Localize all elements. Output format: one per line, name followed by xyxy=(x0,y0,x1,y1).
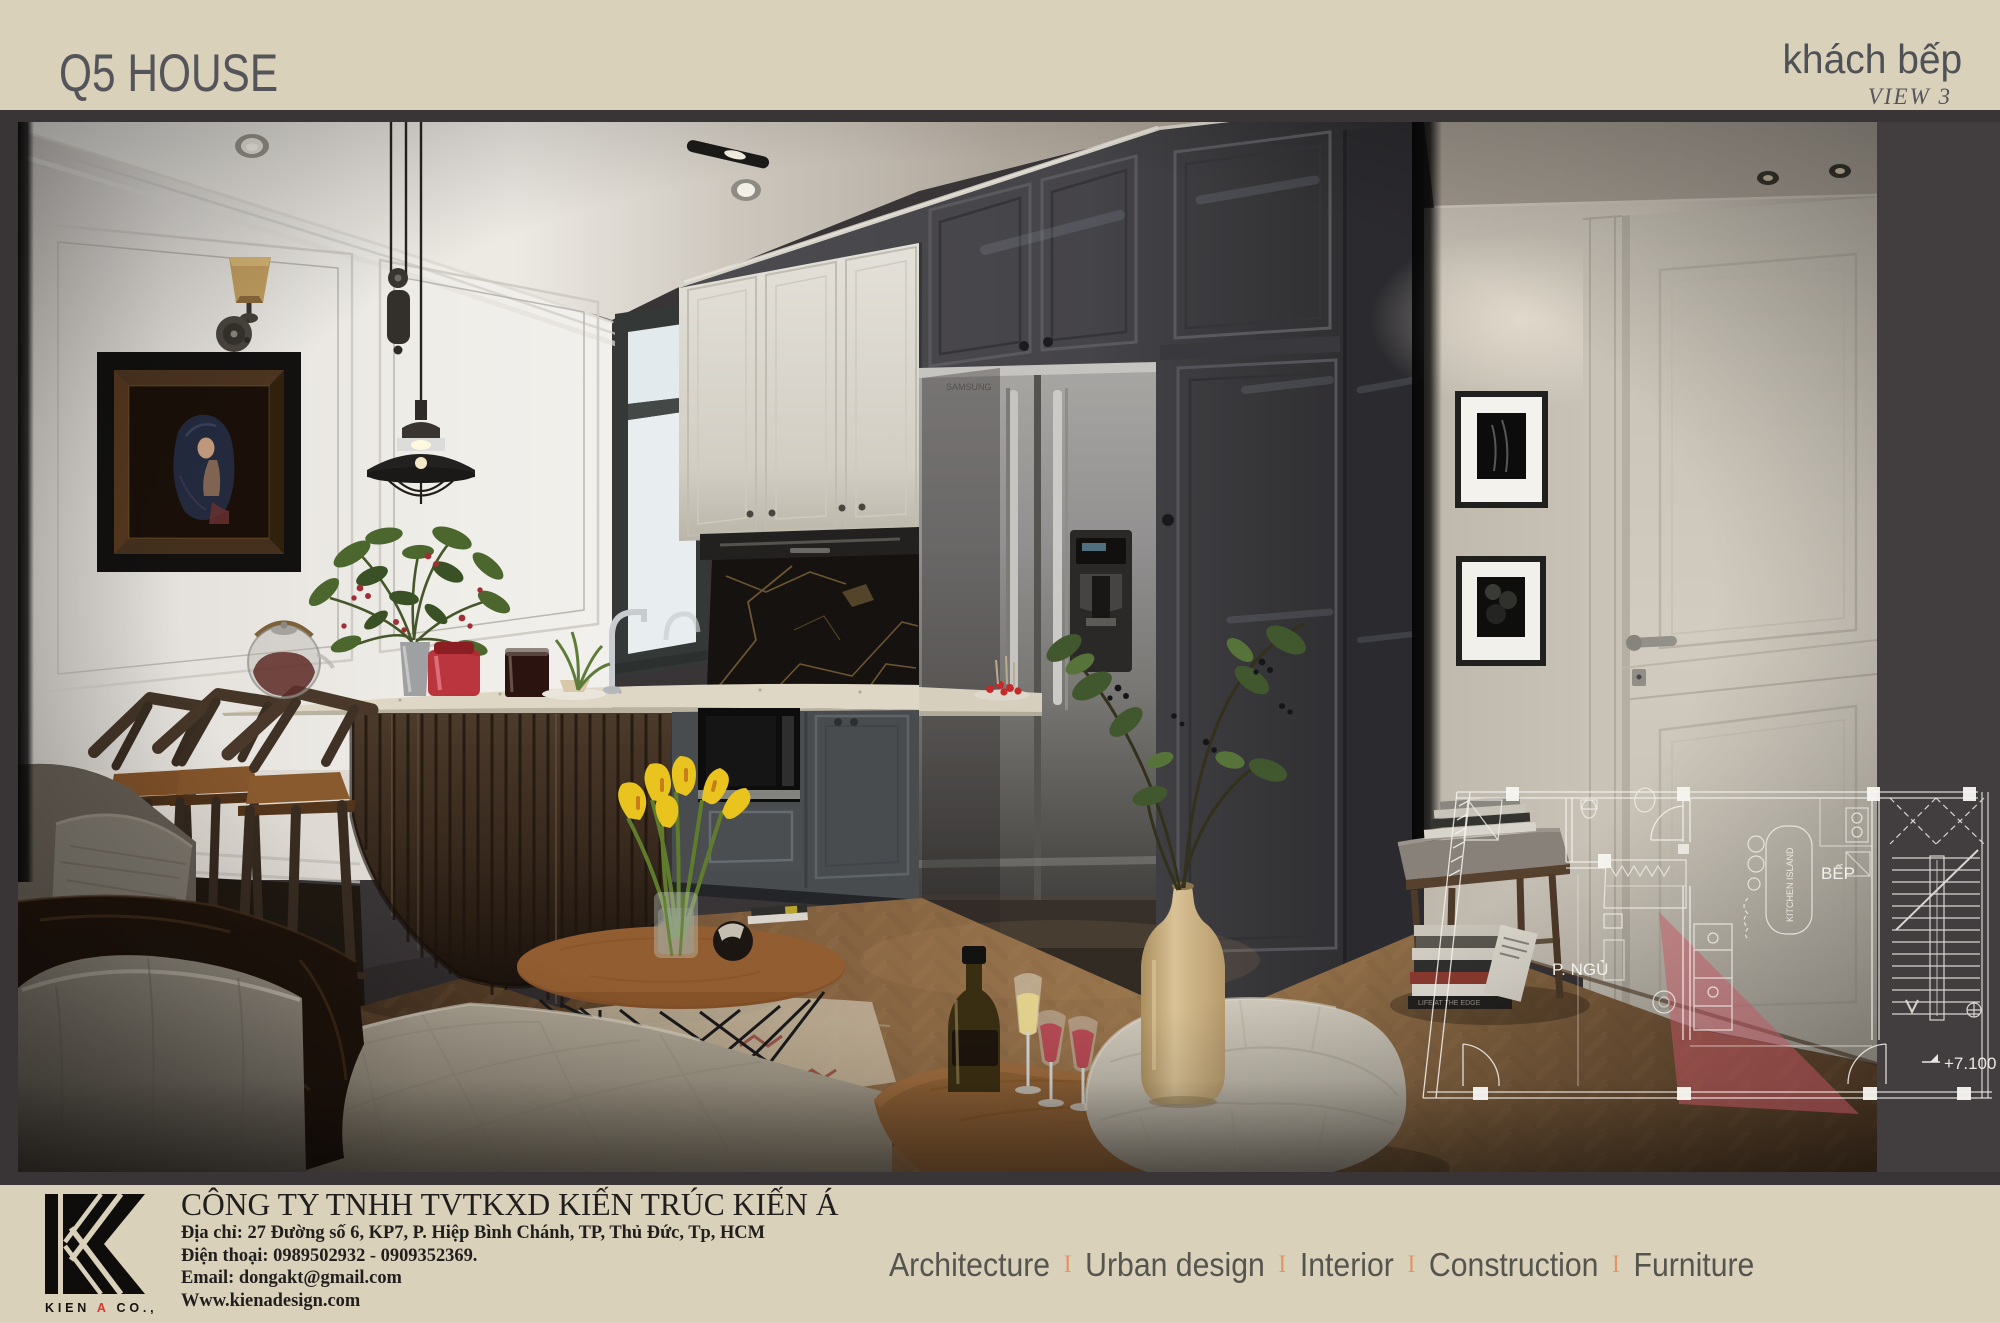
svg-text:+7.100: +7.100 xyxy=(1944,1054,1996,1073)
svg-text:P. NGỦ: P. NGỦ xyxy=(1552,960,1608,979)
svg-text:BẾP: BẾP xyxy=(1821,864,1855,883)
svg-text:KIEN A CO.,: KIEN A CO., xyxy=(45,1301,157,1315)
svg-text:KITCHEN ISLAND: KITCHEN ISLAND xyxy=(1785,847,1795,922)
